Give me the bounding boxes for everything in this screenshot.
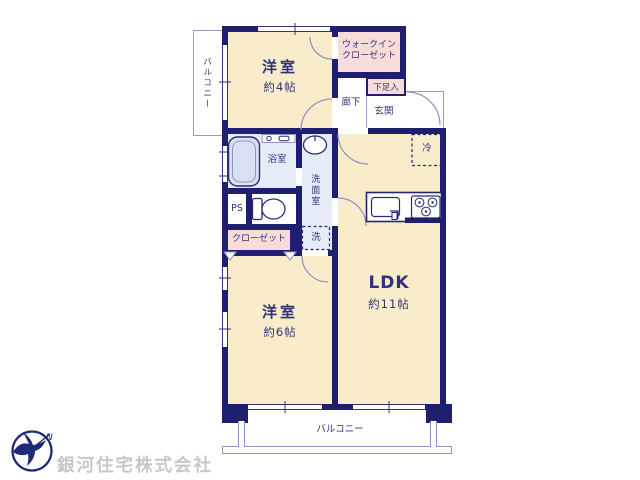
compass-bird-logo: N: [8, 426, 58, 476]
door-arc-wic: [310, 37, 332, 59]
toilet-icon: [253, 199, 286, 220]
door-arc-bedroom4: [301, 99, 332, 130]
door-arc-ldk: [338, 134, 368, 164]
balcony-left-label: バルコニー: [201, 52, 212, 114]
bedroom6-name: 洋室: [228, 303, 332, 322]
bathtub-icon: [229, 137, 260, 186]
shower-counter-icon: [262, 135, 295, 143]
wic-line1: ウォークイン: [336, 40, 402, 51]
ldk-name: LDK: [338, 273, 440, 294]
kitchen-sink-icon: [372, 198, 400, 220]
door-arc-washroom: [338, 198, 366, 226]
pipe-space-label: PS: [226, 203, 248, 215]
bathroom-label: 浴室: [256, 154, 298, 166]
bedroom4-name: 洋室: [228, 58, 332, 77]
door-arc-bedroom6: [302, 256, 328, 282]
washer-label: 洗: [302, 232, 330, 244]
washroom-label: 洗面室: [308, 158, 319, 222]
folding-door-icon: [224, 252, 236, 260]
ldk-label: LDK 約11帖: [338, 273, 440, 312]
folding-door-icon: [284, 252, 296, 260]
refrigerator-label: 冷: [412, 143, 442, 155]
bedroom4-label: 洋室 約4帖: [228, 58, 332, 94]
hallway-label: 廊下: [336, 97, 366, 109]
company-watermark: 銀河住宅株式会社: [57, 452, 213, 477]
entrance-label: 玄関: [366, 106, 402, 118]
bedroom6-label: 洋室 約6帖: [228, 303, 332, 339]
ldk-size: 約11帖: [338, 297, 440, 311]
washbasin-icon: [304, 136, 327, 154]
bedroom4-size: 約4帖: [228, 80, 332, 94]
balcony-bottom-label: バルコニー: [290, 424, 390, 436]
floor-plan: 下足入: [0, 0, 640, 480]
wic-label: ウォークイン クローゼット: [336, 40, 402, 63]
compass-n-letter: N: [46, 433, 53, 443]
bedroom6-size: 約6帖: [228, 325, 332, 339]
wic-line2: クローゼット: [336, 51, 402, 62]
closet-label: クローゼット: [226, 234, 292, 245]
door-arc-entrance: [407, 92, 440, 125]
